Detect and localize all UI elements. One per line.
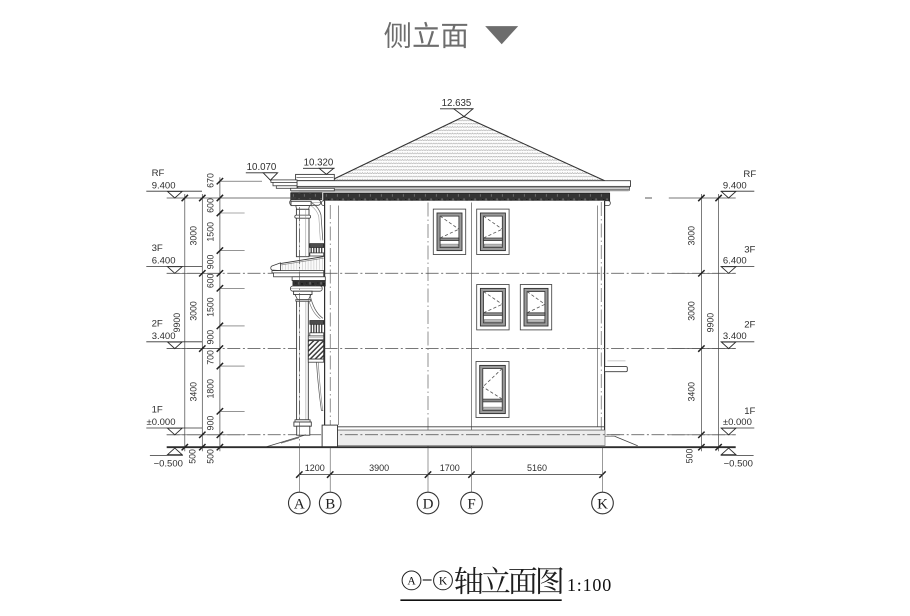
svg-text:6.400: 6.400: [152, 256, 176, 267]
svg-text:700: 700: [206, 350, 216, 365]
svg-text:−0.500: −0.500: [154, 459, 183, 470]
svg-text:900: 900: [206, 254, 216, 269]
svg-text:900: 900: [206, 416, 216, 431]
svg-text:2F: 2F: [744, 320, 755, 331]
svg-text:3F: 3F: [152, 243, 163, 254]
svg-text:12.635: 12.635: [442, 98, 472, 109]
svg-text:600: 600: [206, 273, 216, 288]
svg-text:9900: 9900: [705, 313, 715, 333]
svg-text:K: K: [439, 576, 448, 588]
svg-text:3.400: 3.400: [723, 331, 747, 342]
svg-text:1200: 1200: [305, 463, 325, 473]
svg-text:500: 500: [187, 449, 197, 464]
svg-text:1F: 1F: [152, 405, 163, 416]
svg-text:F: F: [467, 496, 475, 512]
svg-text:3000: 3000: [686, 226, 696, 246]
svg-text:3000: 3000: [189, 301, 199, 321]
svg-text:10.070: 10.070: [247, 162, 277, 173]
svg-text:9.400: 9.400: [723, 180, 747, 191]
svg-text:3.400: 3.400: [152, 331, 176, 342]
svg-text:670: 670: [206, 173, 216, 188]
svg-text:600: 600: [206, 198, 216, 213]
svg-text:900: 900: [206, 330, 216, 345]
svg-text:1500: 1500: [206, 297, 216, 317]
svg-text:2F: 2F: [152, 318, 163, 329]
svg-text:3900: 3900: [369, 463, 389, 473]
svg-text:RF: RF: [743, 169, 756, 180]
svg-text:1F: 1F: [744, 406, 755, 417]
svg-text:3000: 3000: [189, 226, 199, 246]
svg-text:3000: 3000: [686, 301, 696, 321]
svg-text:6.400: 6.400: [723, 256, 747, 267]
svg-text:5160: 5160: [527, 463, 547, 473]
svg-text:1:100: 1:100: [567, 575, 612, 595]
svg-text:3F: 3F: [744, 244, 755, 255]
svg-text:9900: 9900: [172, 313, 182, 333]
svg-text:±0.000: ±0.000: [723, 417, 752, 428]
svg-text:K: K: [597, 496, 608, 512]
svg-text:−0.500: −0.500: [724, 459, 753, 470]
svg-text:500: 500: [206, 449, 216, 464]
svg-text:±0.000: ±0.000: [147, 417, 176, 428]
svg-text:9.400: 9.400: [152, 180, 176, 191]
svg-text:1800: 1800: [206, 379, 216, 399]
svg-text:1500: 1500: [206, 222, 216, 242]
svg-text:A: A: [294, 496, 305, 512]
svg-text:D: D: [423, 496, 434, 512]
svg-text:B: B: [325, 496, 335, 512]
svg-text:10.320: 10.320: [304, 158, 334, 169]
svg-text:1700: 1700: [440, 463, 460, 473]
svg-text:RF: RF: [152, 168, 165, 179]
svg-text:3400: 3400: [189, 382, 199, 402]
svg-text:3400: 3400: [686, 382, 696, 402]
svg-text:500: 500: [685, 449, 695, 464]
svg-text:A: A: [407, 576, 416, 588]
